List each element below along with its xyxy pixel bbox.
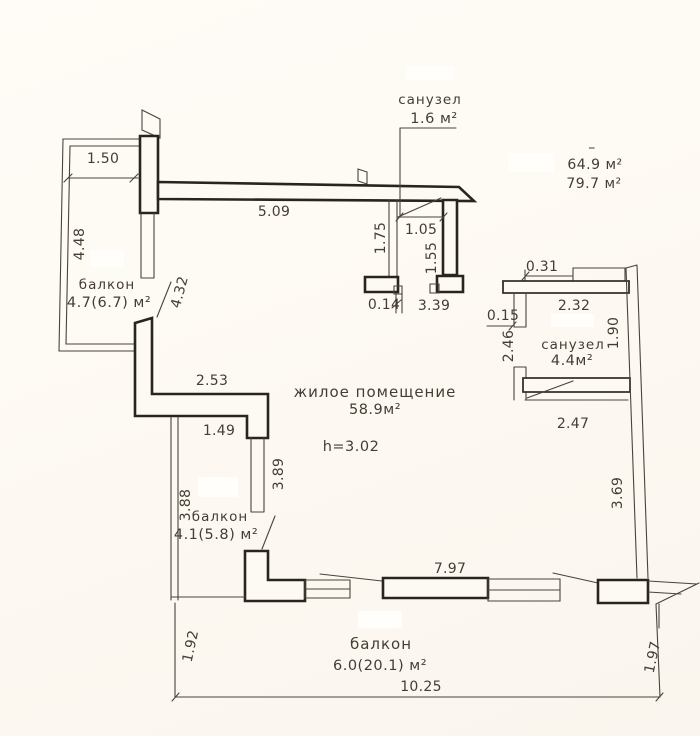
- living-room-area: 58.9м²: [349, 402, 401, 418]
- wall-lines: [626, 265, 648, 578]
- dim-wc-top-left: 1.75: [373, 222, 389, 254]
- wall-notch: [394, 284, 439, 294]
- dim-balcony-bottom-right: 1.97: [642, 640, 664, 675]
- dimension-line: [64, 174, 138, 182]
- dim-top-opening: 3.39: [418, 298, 450, 314]
- balcony-left-label: балкон: [79, 277, 135, 293]
- living-room-label: жилое помещение: [294, 383, 457, 401]
- total-area: 79.7 м²: [566, 176, 621, 192]
- wall-segment: [443, 200, 457, 275]
- dim-balcony-bottom-width: 10.25: [400, 679, 442, 695]
- wc-top-area: 1.6 м²: [410, 111, 457, 127]
- partition-wall: [389, 200, 397, 278]
- wall-flag: [142, 110, 160, 138]
- dim-line-balcony-left-width: [64, 174, 138, 182]
- whiteout-mark: [198, 477, 238, 497]
- wall-segment: [140, 136, 158, 213]
- ceiling-height: h=3.02: [323, 439, 380, 455]
- balcony-bottom-area: 6.0(20.1) м²: [333, 658, 427, 674]
- dim-right-wall: 3.69: [610, 477, 626, 509]
- dim-left-wall: 4.32: [168, 275, 192, 310]
- dim-balcony-left-height: 4.48: [72, 228, 88, 260]
- top-wall: [158, 169, 474, 201]
- wall-segment: [245, 551, 305, 601]
- dim-wc-top-gap: 0.14: [368, 297, 400, 313]
- dim-wc-right-bottom: 2.47: [557, 416, 589, 432]
- dim-balcony-lower-inner: 3.89: [271, 458, 287, 490]
- whiteout-mark: [406, 66, 454, 80]
- dim-top-wall: 5.09: [258, 204, 290, 220]
- totals-mark: –: [588, 140, 596, 156]
- door-leader: [262, 516, 275, 549]
- window-wall: [251, 438, 264, 512]
- wall-foot: [437, 276, 463, 292]
- dim-living-door: 1.49: [203, 423, 235, 439]
- wall-foot: [365, 277, 398, 292]
- window-wall: [488, 579, 560, 601]
- dim-wc-top-door: 1.05: [405, 222, 437, 238]
- dim-wc-top-right: 1.55: [424, 242, 440, 274]
- dim-wc-right-left-height: 2.46: [501, 330, 517, 362]
- wall-segment: [158, 182, 474, 201]
- balcony-lower-label: балкон: [192, 509, 248, 525]
- wall-segment: [503, 281, 629, 293]
- wall-segment: [598, 580, 648, 603]
- dim-wc-right-height: 1.90: [606, 317, 622, 349]
- total-living-area: 64.9 м²: [567, 157, 622, 173]
- wc-right-area: 4.4м²: [551, 353, 593, 369]
- window-wall: [141, 213, 154, 278]
- dim-bottom-window: 7.97: [434, 561, 466, 577]
- wc-top-label: санузел: [398, 92, 462, 108]
- wc-right-label: санузел: [541, 337, 605, 353]
- whiteout-mark: [358, 611, 402, 628]
- balcony-bottom-label: балкон: [350, 635, 412, 653]
- parapet: [573, 268, 625, 281]
- balcony-lower-area: 4.1(5.8) м²: [174, 527, 258, 543]
- whiteout-marks: [90, 66, 594, 628]
- floor-plan: жилое помещение 58.9м² h=3.02 санузел 1.…: [0, 0, 700, 736]
- whiteout-mark: [90, 250, 124, 267]
- dim-balcony-lower-height: 3.88: [178, 489, 194, 521]
- right-outer-wall: [626, 265, 648, 578]
- dim-balcony-left-width: 1.50: [87, 151, 119, 167]
- wc-top-walls: [365, 128, 463, 313]
- dim-wc-right-gap: 0.15: [487, 308, 519, 324]
- dim-step-wall-width: 2.53: [196, 373, 228, 389]
- vent-mark: [358, 169, 367, 184]
- window-segment: [383, 578, 488, 598]
- floor-plan-drawing: жилое помещение 58.9м² h=3.02 санузел 1.…: [0, 0, 700, 736]
- dim-wc-right-width: 2.32: [558, 298, 590, 314]
- wall-segment: [523, 378, 630, 392]
- left-wall-column: [140, 110, 171, 317]
- whiteout-mark: [508, 153, 554, 172]
- dim-wc-right-notch: 0.31: [526, 259, 558, 275]
- whiteout-mark: [551, 314, 594, 327]
- balcony-left-area: 4.7(6.7) м²: [67, 295, 151, 311]
- dim-balcony-bottom-left: 1.92: [180, 629, 202, 664]
- window-wall: [305, 580, 350, 598]
